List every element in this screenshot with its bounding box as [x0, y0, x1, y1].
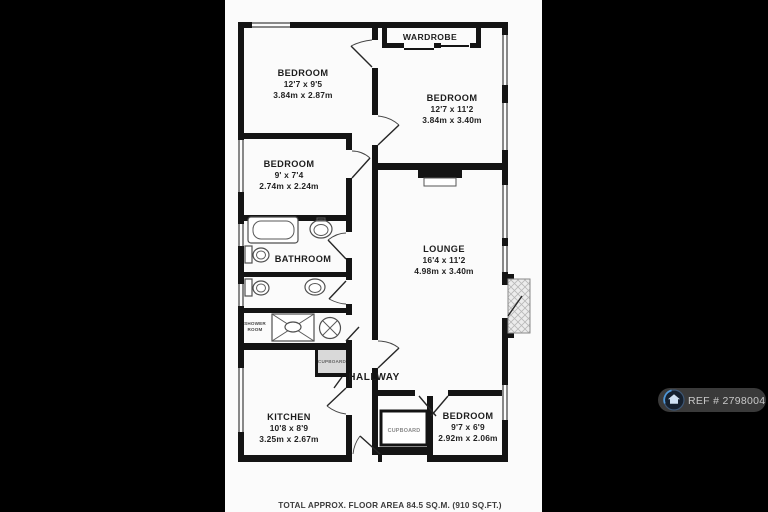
room-bedroom-top-right: BEDROOM 12'7 x 11'2 3.84m x 3.40m: [422, 93, 481, 125]
room-dims-imperial: 12'7 x 11'2: [431, 104, 474, 114]
bottom-cupboard-label: CUPBOARD: [388, 428, 421, 434]
room-name-line1: SHOWER: [244, 321, 266, 326]
room-name: KITCHEN: [267, 412, 311, 422]
room-name-line2: ROOM: [247, 327, 262, 332]
room-dims-imperial: 9'7 x 6'9: [451, 422, 485, 432]
room-bathroom-label: BATHROOM: [275, 254, 332, 264]
room-dims-metric: 4.98m x 3.40m: [414, 266, 473, 276]
floorplan-image: BEDROOM 12'7 x 9'5 3.84m x 2.87m WARDROB…: [0, 0, 768, 512]
porch-hatch: [508, 279, 530, 333]
room-dims-imperial: 9' x 7'4: [275, 170, 304, 180]
ref-number-text: REF # 2798004: [688, 395, 765, 407]
room-name: BEDROOM: [264, 159, 315, 169]
room-name: LOUNGE: [423, 244, 465, 254]
toilet-icon: [245, 246, 269, 263]
floorplan-svg: BEDROOM 12'7 x 9'5 3.84m x 2.87m WARDROB…: [0, 0, 768, 512]
agency-logo-icon: [664, 390, 684, 410]
room-dims-imperial: 16'4 x 11'2: [423, 255, 466, 265]
bathtub-icon: [248, 217, 298, 243]
room-dims-imperial: 12'7 x 9'5: [284, 79, 323, 89]
room-dims-metric: 2.74m x 2.24m: [259, 181, 318, 191]
room-dims-metric: 2.92m x 2.06m: [438, 433, 497, 443]
room-dims-imperial: 10'8 x 8'9: [270, 423, 309, 433]
room-dims-metric: 3.25m x 2.67m: [259, 434, 318, 444]
room-lounge: LOUNGE 16'4 x 11'2 4.98m x 3.40m: [414, 244, 473, 276]
ref-badge: REF # 2798004: [658, 388, 766, 412]
toilet-icon: [245, 279, 269, 296]
sink-icon: [305, 279, 325, 295]
room-name: BEDROOM: [443, 411, 494, 421]
hallway-label: HALLWAY: [348, 372, 399, 383]
circular-fixture-icon: [320, 318, 341, 339]
room-name: BEDROOM: [427, 93, 478, 103]
room-dims-metric: 3.84m x 3.40m: [422, 115, 481, 125]
hall-cupboard-label: CUPBOARD: [318, 359, 347, 364]
total-area-text: TOTAL APPROX. FLOOR AREA 84.5 SQ.M. (910…: [278, 501, 501, 510]
shower-tray-icon: [272, 314, 314, 341]
chimney-hearth: [424, 178, 456, 186]
room-dims-metric: 3.84m x 2.87m: [273, 90, 332, 100]
room-wardrobe-label: WARDROBE: [403, 32, 457, 42]
room-name: BEDROOM: [278, 68, 329, 78]
